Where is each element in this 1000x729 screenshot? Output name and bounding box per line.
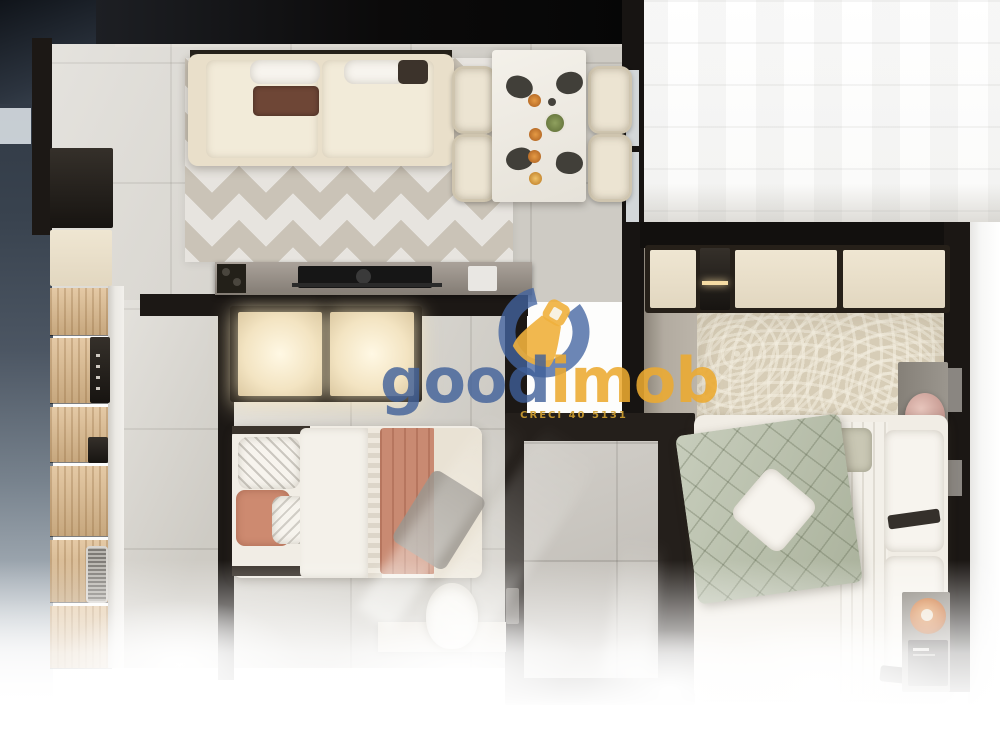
exterior-top-shadow — [0, 0, 642, 46]
wall-edge-highlight — [115, 44, 630, 47]
bed1-duvet-white — [300, 428, 372, 578]
kitchen-cream-panel — [50, 230, 112, 286]
brand-word-good: good — [380, 344, 550, 417]
bed2-pillow — [884, 430, 944, 552]
drink-glass — [529, 172, 542, 185]
exterior-slab-gap — [0, 108, 31, 144]
dining-chair — [452, 66, 496, 134]
drink-glass — [528, 94, 541, 107]
brand-wordmark: goodimob — [380, 350, 719, 412]
drink-glass — [529, 128, 542, 141]
drink-glass — [528, 150, 541, 163]
wardrobe2-door — [735, 250, 837, 308]
brand-word-imob: imob — [550, 344, 719, 417]
small-dish — [548, 98, 556, 106]
bed1-frame-edge — [232, 426, 310, 434]
floor-plan-render: goodimob CRECI 40 5131 — [0, 0, 1000, 729]
sofa-pillow-dark — [398, 60, 428, 84]
sofa-lumbar-pillow — [344, 60, 406, 84]
wall-left — [32, 38, 52, 235]
watermark: goodimob CRECI 40 5131 — [380, 280, 740, 430]
tv-logo-circle — [356, 269, 371, 284]
kitchen-wood-cabinet — [50, 288, 112, 335]
wardrobe-door-lit — [238, 312, 322, 396]
dining-chair — [588, 66, 632, 134]
oven-control-panel — [90, 337, 110, 403]
kitchen-upper-cabinet — [50, 148, 113, 228]
balcony-light-area — [640, 0, 1000, 224]
speaker-cone — [222, 268, 230, 276]
speaker — [217, 264, 246, 293]
sofa-lumbar-pillow — [250, 60, 320, 84]
dining-chair — [588, 134, 632, 202]
oven-knobs — [96, 346, 100, 390]
brand-tagline: CRECI 40 5131 — [504, 410, 644, 421]
wardrobe2-door — [843, 250, 945, 308]
bed1-pillow-patterned — [238, 437, 300, 489]
cooktop-module — [88, 437, 108, 463]
dining-chair — [452, 134, 496, 202]
bottom-light-haze — [0, 560, 1000, 729]
salad-bowl — [546, 114, 564, 132]
sofa-throw-brown — [253, 86, 319, 116]
speaker-cone — [233, 278, 241, 286]
kitchen-wood-cabinet — [50, 466, 112, 536]
